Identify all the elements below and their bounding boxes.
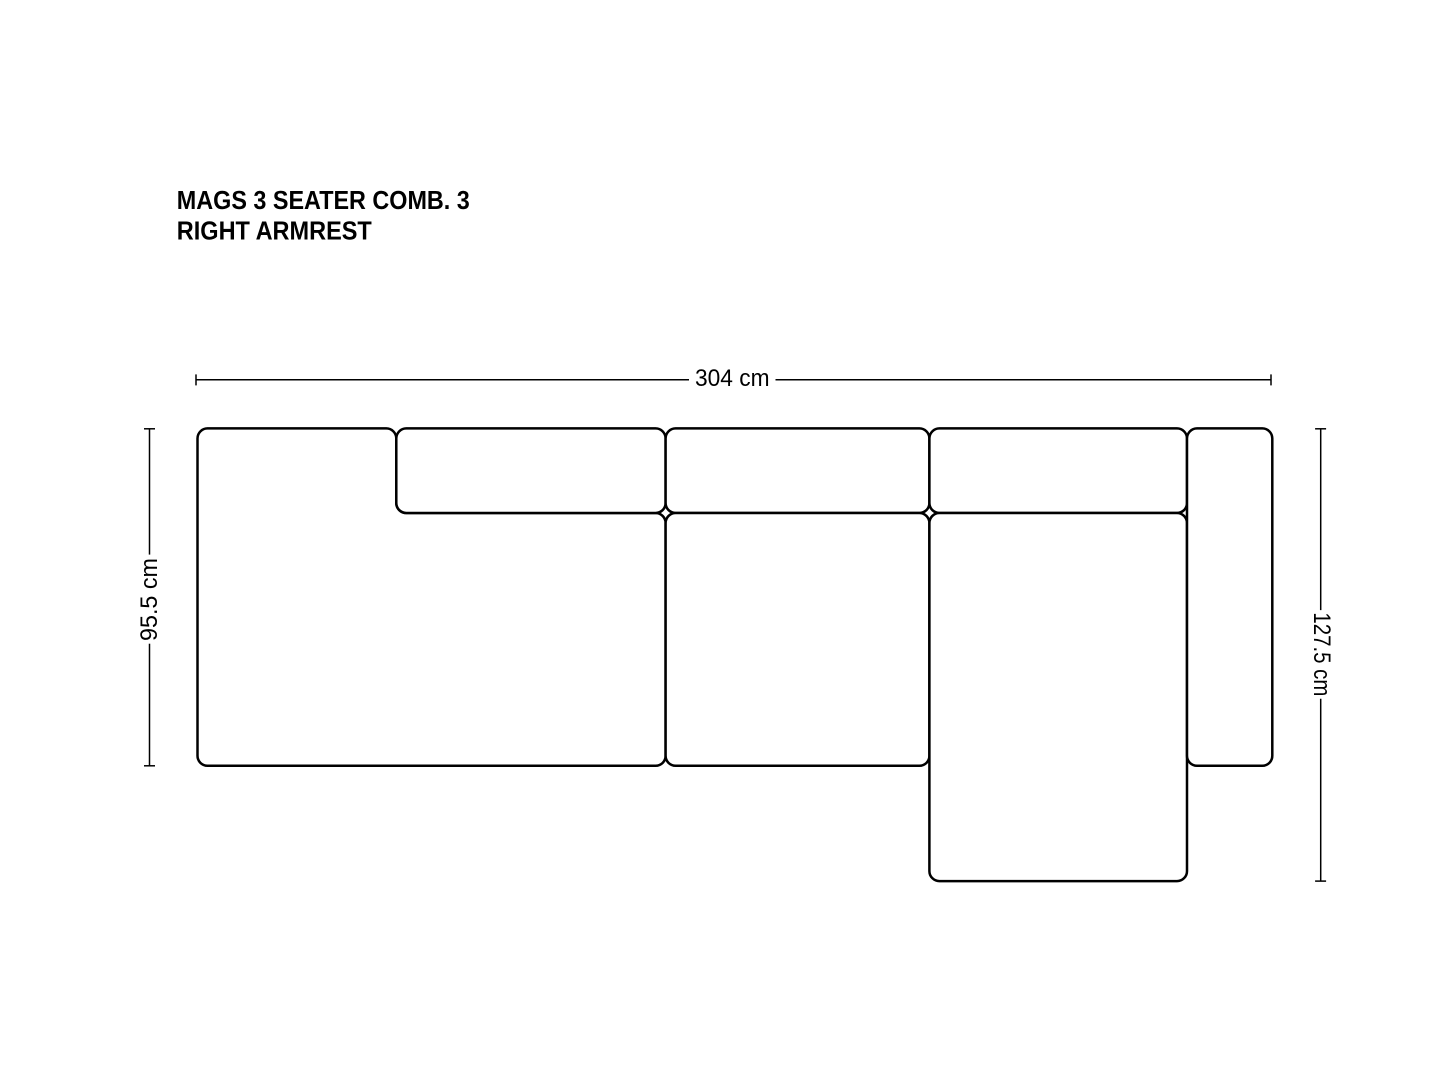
svg-text:RIGHT ARMREST: RIGHT ARMREST (177, 215, 372, 245)
svg-text:MAGS 3 SEATER COMB. 3: MAGS 3 SEATER COMB. 3 (177, 185, 470, 215)
svg-text:127.5 cm: 127.5 cm (1308, 612, 1335, 696)
svg-text:304 cm: 304 cm (695, 365, 770, 392)
svg-text:95.5 cm: 95.5 cm (136, 558, 163, 641)
